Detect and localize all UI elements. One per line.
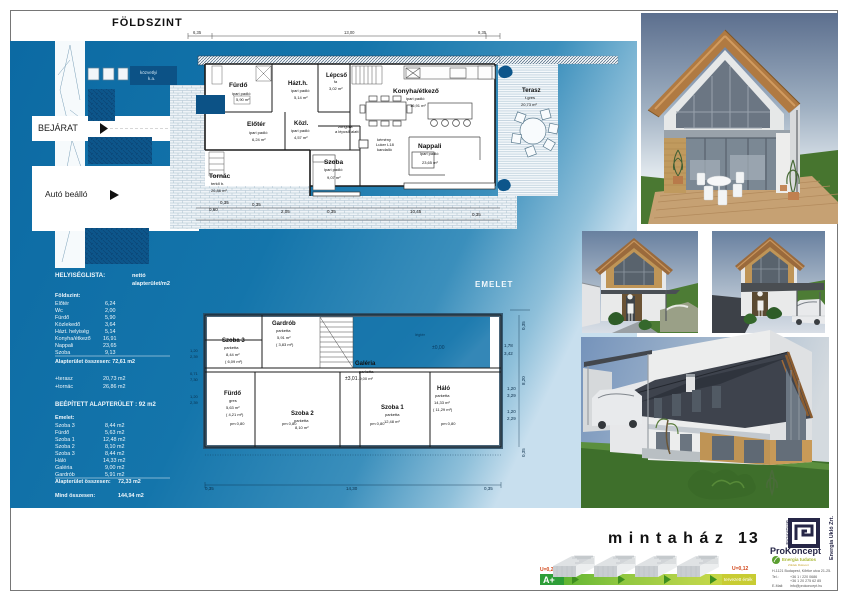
svg-text:Közl.: Közl. xyxy=(294,121,309,127)
svg-text:14,33 m2: 14,33 m2 xyxy=(103,458,125,464)
svg-text:ipari padló: ipari padló xyxy=(406,96,425,101)
svg-text:Előtér: Előtér xyxy=(247,121,266,128)
svg-text:Wc: Wc xyxy=(55,308,63,314)
svg-text:3,02 m²: 3,02 m² xyxy=(329,86,343,91)
svg-text:BEÉPÍTETT ALAPTERÜLET : 92 m2: BEÉPÍTETT ALAPTERÜLET : 92 m2 xyxy=(55,400,156,408)
svg-text:Házt.h.: Házt.h. xyxy=(288,81,308,87)
svg-text:0,35: 0,35 xyxy=(521,448,526,457)
svg-text:0,35: 0,35 xyxy=(252,202,261,207)
svg-text:parketta: parketta xyxy=(435,393,450,398)
svg-text:Tel.:: Tel.: xyxy=(772,575,779,579)
svg-text:HELYISÉGLISTA:: HELYISÉGLISTA: xyxy=(55,271,105,279)
svg-text:( 3,83 m²): ( 3,83 m²) xyxy=(276,342,294,347)
svg-text:±0,00: ±0,00 xyxy=(432,345,445,351)
svg-text:parketta: parketta xyxy=(276,328,291,333)
svg-text:nettó: nettó xyxy=(132,273,146,279)
svg-text:2,39: 2,39 xyxy=(190,354,199,359)
svg-text:Emelet:: Emelet: xyxy=(55,415,75,421)
svg-text:EMELET: EMELET xyxy=(475,280,513,289)
svg-text:10,45: 10,45 xyxy=(410,209,422,214)
svg-text:-9,00 m²: -9,00 m² xyxy=(358,376,374,381)
svg-text:12,48 m²: 12,48 m² xyxy=(384,419,400,424)
svg-text:pm 0,80: pm 0,80 xyxy=(370,421,385,426)
svg-text:Szoba 3: Szoba 3 xyxy=(55,451,75,457)
svg-text:0,35: 0,35 xyxy=(220,200,229,205)
svg-text:MESZKRONE: MESZKRONE xyxy=(785,520,790,546)
svg-text:4,57 m²: 4,57 m² xyxy=(294,135,308,140)
svg-text:pm 0,80: pm 0,80 xyxy=(230,421,245,426)
svg-text:9,07 m²: 9,07 m² xyxy=(327,175,341,180)
svg-text:3,64: 3,64 xyxy=(105,322,116,328)
svg-text:parketta: parketta xyxy=(224,345,239,350)
svg-text:Lépcső: Lépcső xyxy=(326,73,347,79)
svg-text:3,29: 3,29 xyxy=(507,393,516,398)
svg-text:9,13: 9,13 xyxy=(105,350,116,356)
svg-text:Házt. helyiség: Házt. helyiség xyxy=(55,329,89,335)
svg-text:Előtér: Előtér xyxy=(55,301,69,307)
svg-text:0,71: 0,71 xyxy=(190,371,199,376)
svg-text:8,44 m2: 8,44 m2 xyxy=(105,451,124,457)
svg-text:0,35: 0,35 xyxy=(327,209,336,214)
svg-text:0,35: 0,35 xyxy=(484,486,493,491)
svg-text:Közlekedő: Közlekedő xyxy=(55,322,80,328)
svg-text:5,14 m²: 5,14 m² xyxy=(294,95,308,100)
svg-text:H-1121 Budapest, Kőrtke utca 2: H-1121 Budapest, Kőrtke utca 21-25. xyxy=(772,569,831,573)
svg-text:ipari padló: ipari padló xyxy=(291,128,310,133)
svg-text:Szoba 1: Szoba 1 xyxy=(381,405,404,411)
svg-text:2,29: 2,29 xyxy=(507,416,516,421)
svg-text:6,24 m²: 6,24 m² xyxy=(252,137,266,142)
svg-text:Alapterület összesen: 72,61 m2: Alapterület összesen: 72,61 m2 xyxy=(55,359,135,365)
svg-text:info@prokoncept.hu: info@prokoncept.hu xyxy=(790,584,822,588)
svg-text:0,35: 0,35 xyxy=(521,321,526,330)
svg-text:0,35: 0,35 xyxy=(205,486,214,491)
svg-text:terkő b.: terkő b. xyxy=(211,181,224,186)
svg-text:Szoba 1: Szoba 1 xyxy=(55,437,75,443)
svg-text:14,33 m²: 14,33 m² xyxy=(434,400,450,405)
svg-text:( 6,09 m²): ( 6,09 m²) xyxy=(225,359,243,364)
svg-text:Galéria: Galéria xyxy=(355,361,376,367)
svg-text:gres: gres xyxy=(229,398,237,403)
svg-text:+tornác: +tornác xyxy=(55,384,73,390)
svg-text:1,20: 1,20 xyxy=(507,386,516,391)
svg-text:Szoba 2: Szoba 2 xyxy=(55,444,75,450)
svg-text:Autó beálló: Autó beálló xyxy=(45,189,88,199)
svg-text:Szoba: Szoba xyxy=(55,350,70,356)
svg-text:16,91: 16,91 xyxy=(103,336,117,342)
svg-text:ipari padló: ipari padló xyxy=(249,130,268,135)
svg-text:20,73 m2: 20,73 m2 xyxy=(103,376,125,382)
svg-text:1,20: 1,20 xyxy=(190,394,199,399)
svg-text:BEJÁRAT: BEJÁRAT xyxy=(38,123,78,133)
svg-text:144,94 m2: 144,94 m2 xyxy=(118,493,144,499)
svg-text:Galéria: Galéria xyxy=(55,465,72,471)
svg-text:k.a.: k.a. xyxy=(148,76,155,81)
svg-text:U=0,12: U=0,12 xyxy=(732,566,748,572)
svg-text:14,30: 14,30 xyxy=(346,486,358,491)
svg-text:parketta: parketta xyxy=(359,369,374,374)
svg-text:Fürdő: Fürdő xyxy=(55,430,69,436)
svg-text:közvetlyi: közvetlyi xyxy=(140,70,157,75)
svg-text:5,63 m²: 5,63 m² xyxy=(226,405,240,410)
svg-text:Gardrób: Gardrób xyxy=(55,472,75,478)
svg-text:Nappali: Nappali xyxy=(418,143,442,150)
svg-text:Szoba: Szoba xyxy=(324,159,344,166)
svg-text:13,00: 13,00 xyxy=(344,30,355,35)
svg-text:16,91 m²: 16,91 m² xyxy=(410,103,426,108)
svg-text:8,20: 8,20 xyxy=(521,376,526,385)
svg-text:pm 0,80: pm 0,80 xyxy=(282,421,297,426)
svg-text:Szoba 3: Szoba 3 xyxy=(55,423,75,429)
svg-text:t.gres: t.gres xyxy=(525,95,535,100)
svg-text:5,90 m²: 5,90 m² xyxy=(236,97,250,102)
svg-text:Terasz: Terasz xyxy=(522,88,541,94)
svg-text:a lépcső alatt: a lépcső alatt xyxy=(335,129,359,134)
svg-text:mintaház: mintaház xyxy=(608,530,729,547)
svg-text:2,00: 2,00 xyxy=(105,308,116,314)
svg-text:tervezett érték: tervezett érték xyxy=(724,577,753,582)
svg-text:3,42: 3,42 xyxy=(504,351,513,356)
svg-text:Konyha/étkező: Konyha/étkező xyxy=(55,336,91,342)
svg-text:Szoba 3: Szoba 3 xyxy=(222,338,245,344)
svg-text:7,30: 7,30 xyxy=(190,377,199,382)
svg-text:9,00 m2: 9,00 m2 xyxy=(105,465,124,471)
svg-text:5,91 m2: 5,91 m2 xyxy=(105,472,124,478)
svg-text:6,35: 6,35 xyxy=(193,30,202,35)
svg-text:Nappali: Nappali xyxy=(55,343,73,349)
svg-text:ipari padló: ipari padló xyxy=(291,88,310,93)
svg-text:Gardrób: Gardrób xyxy=(272,321,296,327)
svg-text:5,90: 5,90 xyxy=(105,315,116,321)
svg-text:FÖLDSZINT: FÖLDSZINT xyxy=(112,16,183,29)
svg-text:Alapterület összesen:: Alapterület összesen: xyxy=(55,479,111,485)
svg-text:légtér: légtér xyxy=(415,332,426,337)
svg-text:1,20: 1,20 xyxy=(190,348,199,353)
svg-text:Háló: Háló xyxy=(55,458,66,464)
svg-text:1,20: 1,20 xyxy=(507,409,516,414)
svg-text:0,60: 0,60 xyxy=(209,207,218,212)
svg-text:alapterület/m2: alapterület/m2 xyxy=(132,281,170,287)
svg-text:6,35: 6,35 xyxy=(478,30,487,35)
svg-text:5,14: 5,14 xyxy=(105,329,116,335)
svg-text:5,63 m2: 5,63 m2 xyxy=(105,430,124,436)
svg-text:Konyha/étkező: Konyha/étkező xyxy=(393,88,439,95)
svg-text:13: 13 xyxy=(738,530,760,547)
svg-text:( 11,29 m²): ( 11,29 m²) xyxy=(433,407,453,412)
svg-text:12,48 m2: 12,48 m2 xyxy=(103,437,125,443)
svg-text:ipari padló: ipari padló xyxy=(232,91,251,96)
svg-text:23,65 m²: 23,65 m² xyxy=(422,160,438,165)
svg-text:parketta: parketta xyxy=(385,412,400,417)
svg-text:20,73 m²: 20,73 m² xyxy=(521,102,537,107)
svg-text:72,33 m2: 72,33 m2 xyxy=(118,479,141,485)
svg-text:Fürdő: Fürdő xyxy=(229,82,247,89)
svg-text:8,44 m²: 8,44 m² xyxy=(226,352,240,357)
svg-text:26,86 m²: 26,86 m² xyxy=(211,188,227,193)
svg-text:1,78: 1,78 xyxy=(504,343,513,348)
svg-text:( 4,21 m²): ( 4,21 m²) xyxy=(226,412,244,417)
svg-text:E-Mail:: E-Mail: xyxy=(772,584,783,588)
svg-text:0,35: 0,35 xyxy=(472,212,481,217)
svg-text:±3,01: ±3,01 xyxy=(345,376,358,382)
svg-text:Tornác: Tornác xyxy=(209,173,231,180)
svg-text:Mind összesen:: Mind összesen: xyxy=(55,493,95,499)
svg-text:ipari padló: ipari padló xyxy=(420,151,439,156)
svg-text:2,05: 2,05 xyxy=(281,209,290,214)
svg-text:Fürdő: Fürdő xyxy=(55,315,69,321)
svg-text:kandalló: kandalló xyxy=(377,147,393,152)
svg-text:Szoba 2: Szoba 2 xyxy=(291,411,314,417)
svg-text:Energia tudatos: Energia tudatos xyxy=(782,557,817,562)
svg-text:Földszint:: Földszint: xyxy=(55,293,81,299)
svg-text:+terasz: +terasz xyxy=(55,376,73,382)
svg-text:26,86 m2: 26,86 m2 xyxy=(103,384,125,390)
svg-text:ipari padló: ipari padló xyxy=(324,167,343,172)
svg-text:Energia Ukló Zrt.: Energia Ukló Zrt. xyxy=(829,516,835,560)
svg-text:6,24: 6,24 xyxy=(105,301,116,307)
svg-text:pm 0,80: pm 0,80 xyxy=(441,421,456,426)
svg-text:Zöldek Roksont: Zöldek Roksont xyxy=(788,563,809,567)
svg-text:8,10 m²: 8,10 m² xyxy=(295,425,309,430)
svg-text:Háló: Háló xyxy=(437,386,450,392)
svg-text:ProKoncept: ProKoncept xyxy=(770,546,821,556)
svg-text:23,65: 23,65 xyxy=(103,343,117,349)
svg-text:2,39: 2,39 xyxy=(190,400,199,405)
svg-text:8,44 m2: 8,44 m2 xyxy=(105,423,124,429)
svg-text:5,91 m²: 5,91 m² xyxy=(277,335,291,340)
svg-text:8,10 m2: 8,10 m2 xyxy=(105,444,124,450)
svg-text:Fürdő: Fürdő xyxy=(224,391,241,397)
svg-text:+36 1 20 275 62 85: +36 1 20 275 62 85 xyxy=(790,579,821,583)
